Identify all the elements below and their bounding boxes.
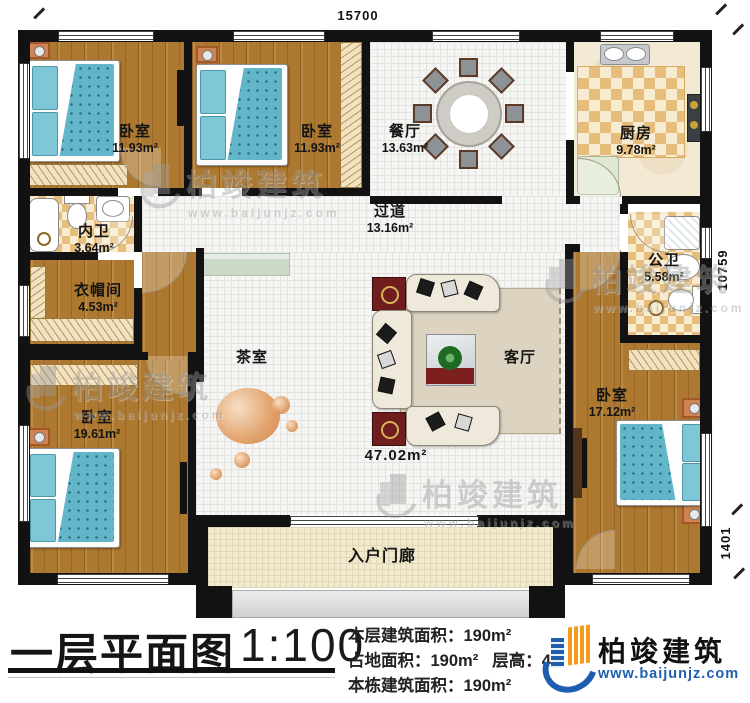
tv-icon — [582, 438, 587, 488]
burner — [690, 101, 698, 109]
title-underline — [8, 668, 335, 673]
chair-icon — [459, 150, 478, 169]
bed-sheet — [226, 68, 256, 160]
room-label-hallway: 过道 13.16m² — [352, 204, 428, 235]
bathtub-knob — [37, 232, 51, 246]
room-label-bedroom-top-left: 卧室 11.93m² — [95, 124, 175, 155]
plan-scale: 1:100 — [240, 618, 365, 672]
shower-icon — [664, 216, 700, 250]
pillow-icon — [32, 112, 58, 156]
wall — [566, 140, 574, 204]
wall — [184, 38, 192, 188]
brand-logo-icon — [542, 626, 596, 688]
tea-art-icon — [272, 396, 290, 414]
entry-mat — [203, 253, 290, 276]
stat-footprint-and-height: 占地面积：190m²层高：4 — [348, 649, 551, 674]
room-label-tea-room: 茶室 — [222, 350, 282, 367]
window — [701, 67, 711, 132]
window — [19, 63, 29, 159]
tea-art-icon — [286, 420, 298, 432]
room-label-public-bath: 公卫 5.58m² — [632, 253, 696, 284]
floor-drain-icon — [648, 300, 664, 316]
side-table-icon — [372, 277, 406, 311]
title-block: 一层平面图 1:100 本层建筑面积：190m² 占地面积：190m²层高：4 … — [0, 618, 750, 703]
dimension-tick — [715, 3, 727, 15]
tea-art-icon — [216, 388, 280, 444]
wardrobe-icon — [340, 42, 362, 188]
room-label-kitchen: 厨房 9.78m² — [600, 126, 672, 157]
closet-icon — [28, 164, 128, 186]
dimension-tick — [732, 23, 744, 35]
wall — [188, 352, 196, 573]
wall — [620, 204, 628, 214]
chair-icon — [505, 104, 524, 123]
pillow-icon — [200, 116, 226, 160]
brand-url: www.baijunjz.com — [598, 666, 739, 682]
stat-floor-area: 本层建筑面积：190m² — [348, 624, 551, 649]
wall — [477, 515, 565, 527]
tv-icon — [177, 70, 184, 126]
sofa-icon — [406, 406, 500, 446]
nightstand-icon — [28, 428, 50, 446]
wall — [620, 335, 712, 343]
closet-icon — [30, 364, 138, 386]
bed-sheet — [58, 64, 88, 156]
dimension-top: 15700 — [318, 8, 398, 23]
closet-icon — [628, 349, 700, 371]
nightstand-icon — [28, 42, 50, 59]
nightstand-icon — [196, 46, 218, 63]
wall — [620, 252, 628, 335]
column — [529, 586, 565, 620]
plant-icon — [438, 346, 462, 370]
wall — [242, 188, 370, 196]
dining-table-top — [449, 94, 489, 134]
room-label-bedroom-bottom-left: 卧室 19.61m² — [57, 410, 137, 441]
pillow-icon — [200, 70, 226, 114]
sink-basin — [604, 47, 624, 61]
wall — [565, 244, 580, 252]
wall — [553, 527, 565, 588]
pillow-icon — [30, 454, 56, 497]
wall — [196, 527, 208, 588]
window — [19, 285, 29, 337]
cushion-icon — [378, 377, 396, 395]
pillow-icon — [30, 499, 56, 542]
bed-sheet — [650, 424, 678, 500]
dimension-tick — [733, 567, 745, 579]
closet-icon — [30, 318, 134, 342]
wall — [566, 38, 574, 72]
building-stats: 本层建筑面积：190m² 占地面积：190m²层高：4 本栋建筑面积：190m² — [348, 624, 551, 699]
room-label-dining: 餐厅 13.63m² — [372, 124, 438, 155]
window — [701, 227, 711, 259]
column — [196, 586, 232, 620]
wall — [566, 196, 580, 204]
room-label-bedroom-right: 卧室 17.12m² — [570, 388, 654, 419]
dimension-right-lower: 1401 — [718, 519, 734, 567]
wall — [158, 188, 202, 196]
wall — [18, 188, 118, 196]
room-label-bedroom-top-mid: 卧室 11.93m² — [277, 124, 357, 155]
room-label-cloakroom: 衣帽间 4.53m² — [58, 283, 138, 314]
tv-icon — [180, 462, 187, 514]
porch-step — [232, 590, 531, 618]
wall — [196, 248, 204, 382]
side-table-icon — [372, 412, 406, 446]
living-room-area: 47.02m² — [348, 448, 444, 465]
dimension-tick — [33, 7, 45, 19]
window — [233, 31, 325, 41]
toilet-bowl — [668, 289, 694, 311]
bed-sheet — [56, 452, 86, 542]
window — [701, 433, 711, 527]
window — [600, 31, 674, 41]
room-label-porch: 入户门廊 — [322, 548, 442, 566]
sink-basin — [102, 200, 124, 217]
tea-art-icon — [210, 468, 222, 480]
window — [432, 31, 520, 41]
wall — [362, 38, 370, 196]
wall — [134, 196, 142, 252]
wall — [196, 515, 290, 527]
window — [592, 574, 690, 584]
dimension-tick — [731, 503, 743, 515]
window — [57, 574, 169, 584]
stat-total-area: 本栋建筑面积：190m² — [348, 674, 551, 699]
burner — [690, 121, 698, 129]
wall — [18, 352, 148, 360]
coffee-table-band — [426, 368, 474, 384]
wall — [18, 344, 142, 352]
window — [19, 425, 29, 522]
sink-basin — [626, 47, 646, 61]
tea-art-icon — [234, 452, 250, 468]
sliding-door — [290, 516, 479, 526]
wall — [622, 196, 712, 204]
dimension-right: 10759 — [715, 239, 731, 301]
window — [58, 31, 154, 41]
room-label-inner-bath: 内卫 3.64m² — [62, 224, 126, 255]
brand-name: 柏竣建筑 — [598, 630, 726, 670]
pillow-icon — [32, 66, 58, 110]
title-underline-thin — [8, 677, 335, 678]
room-label-living-room: 客厅 — [494, 350, 546, 367]
floor-plan-canvas: 卧室 11.93m² 卧室 11.93m² 餐厅 13.63m² 厨房 9.78… — [0, 0, 750, 703]
chair-icon — [413, 104, 432, 123]
chair-icon — [459, 58, 478, 77]
tv-cabinet-icon — [573, 428, 582, 498]
